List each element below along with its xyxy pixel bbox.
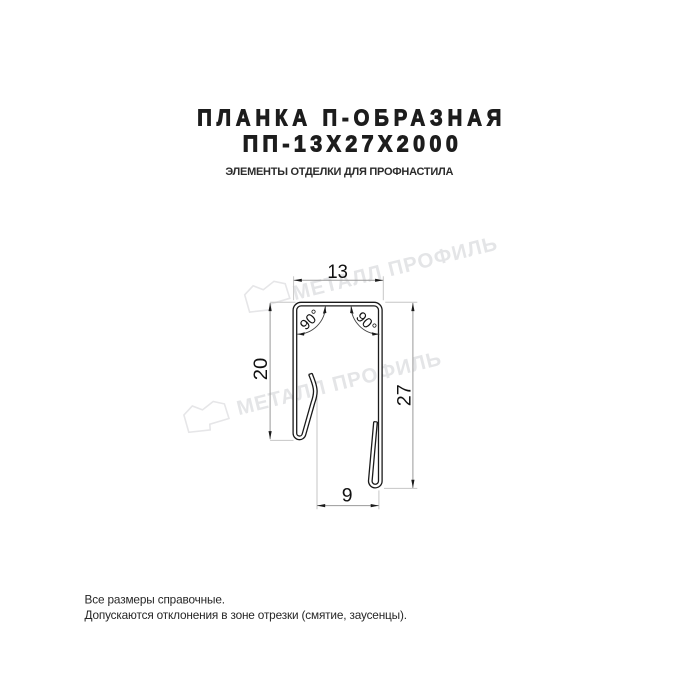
svg-text:20: 20 [250, 358, 272, 381]
svg-text:Допускаются отклонения в зоне: Допускаются отклонения в зоне отрезки (с… [85, 608, 408, 622]
svg-text:13: 13 [327, 261, 348, 283]
svg-text:27: 27 [394, 384, 416, 406]
svg-text:Все размеры справочные.: Все размеры справочные. [85, 593, 226, 607]
svg-text:ЭЛЕМЕНТЫ ОТДЕЛКИ ДЛЯ ПРОФНАСТИ: ЭЛЕМЕНТЫ ОТДЕЛКИ ДЛЯ ПРОФНАСТИЛА [225, 166, 453, 178]
svg-text:9: 9 [342, 485, 353, 507]
